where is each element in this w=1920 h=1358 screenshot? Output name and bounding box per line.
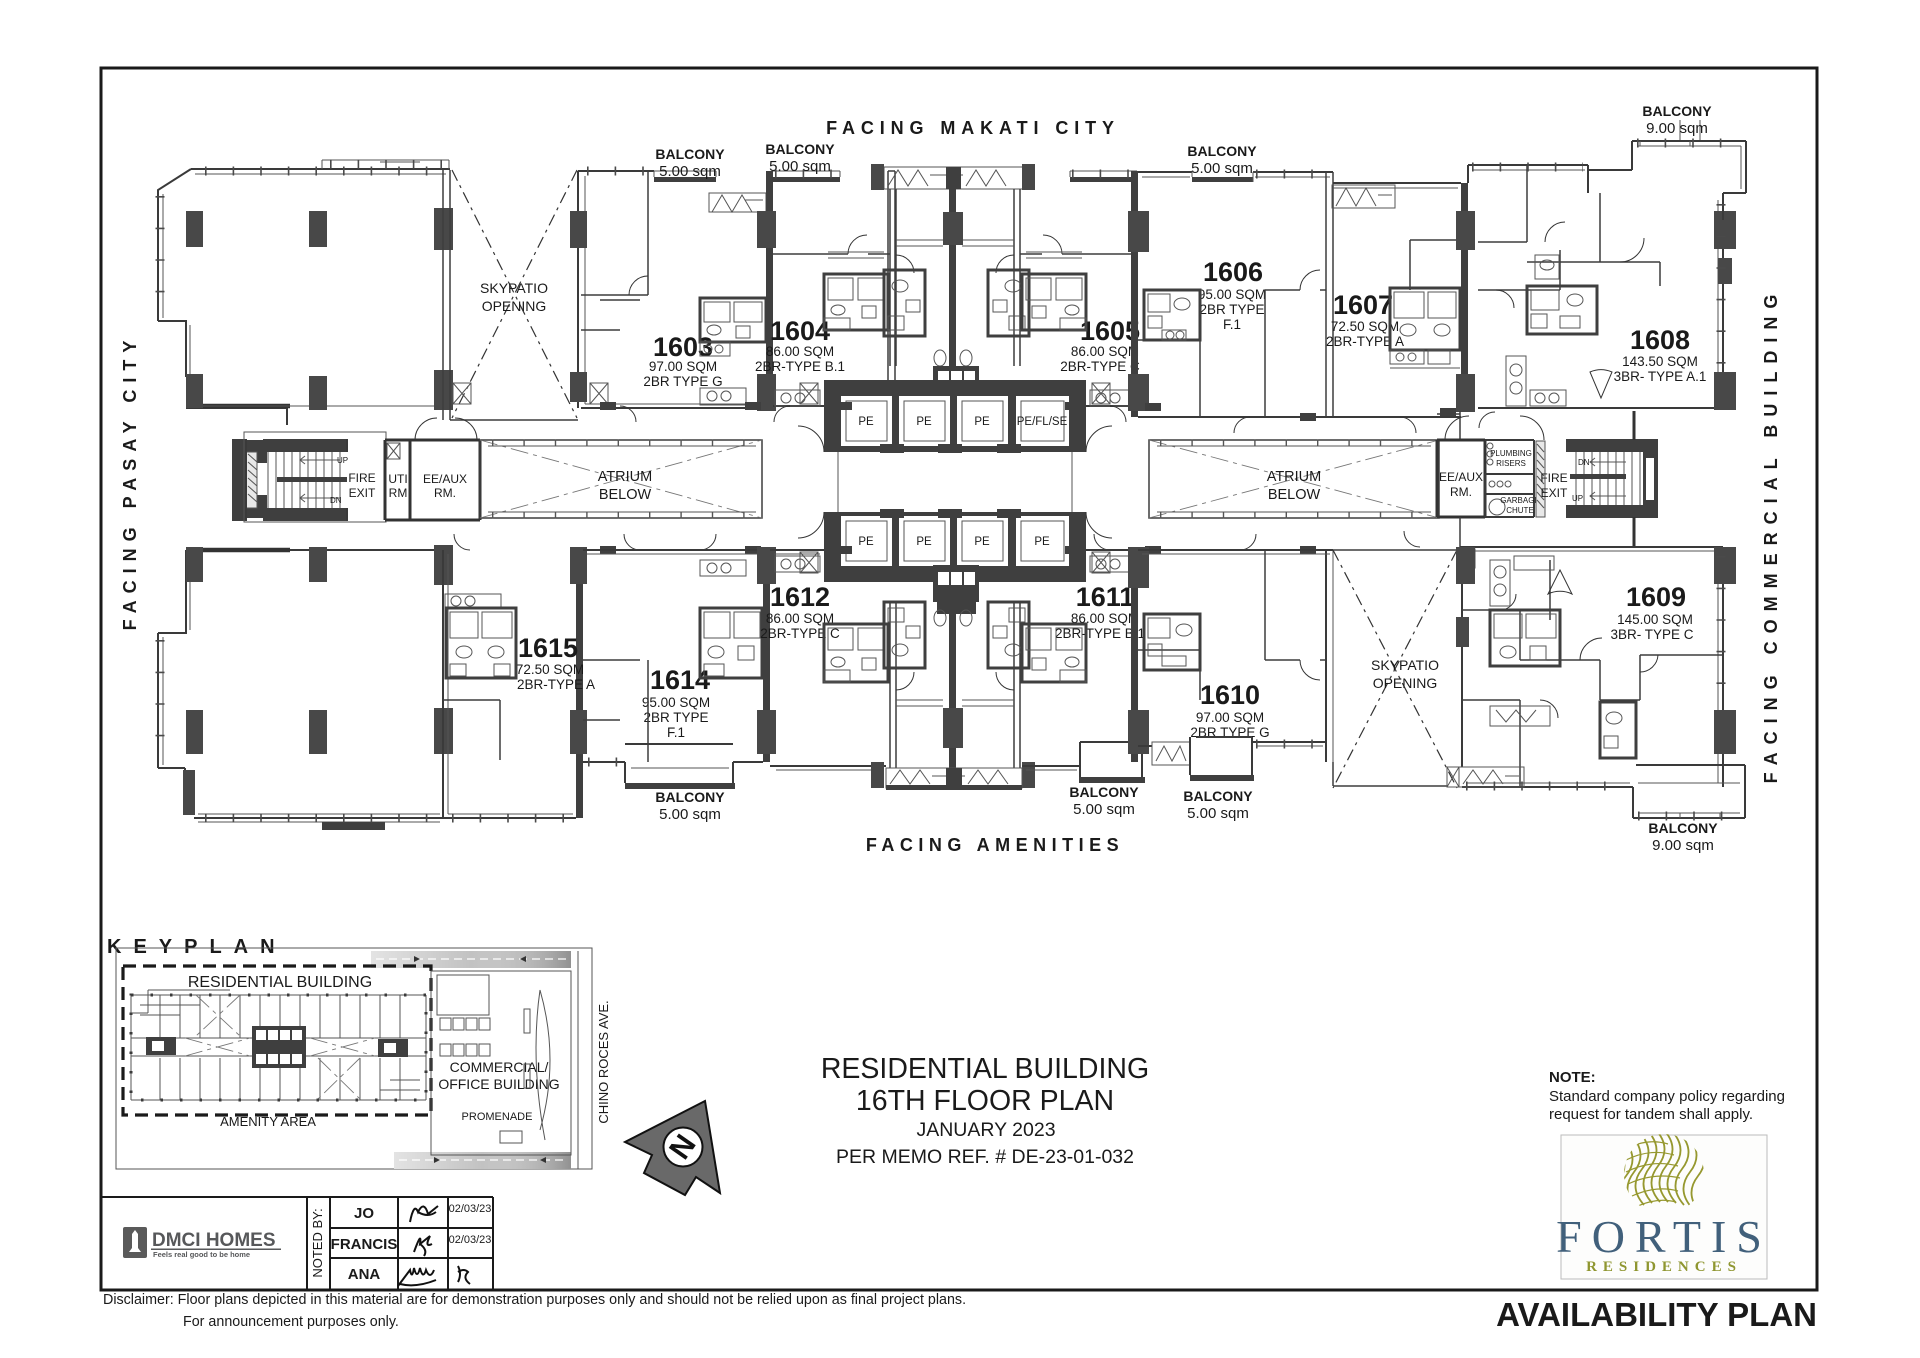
svg-text:For announcement purposes only: For announcement purposes only. — [183, 1314, 399, 1330]
svg-text:FACING PASAY CITY: FACING PASAY CITY — [120, 334, 140, 631]
svg-text:FIRE: FIRE — [348, 471, 375, 485]
svg-text:RM: RM — [389, 486, 408, 500]
svg-text:SKYPATIO: SKYPATIO — [1371, 657, 1439, 673]
svg-text:PE: PE — [858, 416, 874, 428]
svg-text:9.00 sqm: 9.00 sqm — [1652, 837, 1714, 854]
svg-text:BALCONY: BALCONY — [655, 789, 725, 805]
svg-text:3BR- TYPE A.1: 3BR- TYPE A.1 — [1614, 369, 1707, 384]
svg-text:DMCI HOMES: DMCI HOMES — [152, 1230, 276, 1251]
svg-text:1615: 1615 — [518, 633, 578, 663]
svg-text:RM.: RM. — [434, 486, 456, 500]
svg-text:SKYPATIO: SKYPATIO — [480, 280, 548, 296]
svg-text:FORTIS: FORTIS — [1556, 1211, 1772, 1262]
svg-text:1610: 1610 — [1200, 680, 1260, 710]
svg-text:PE: PE — [974, 536, 990, 548]
svg-text:RESIDENTIAL BUILDING: RESIDENTIAL BUILDING — [821, 1053, 1149, 1085]
svg-text:2BR-TYPE C: 2BR-TYPE C — [1060, 359, 1140, 374]
svg-text:BELOW: BELOW — [1268, 487, 1321, 503]
svg-text:5.00 sqm: 5.00 sqm — [769, 158, 831, 175]
svg-text:Feels real good to be home: Feels real good to be home — [153, 1250, 250, 1259]
svg-text:BALCONY: BALCONY — [1642, 103, 1712, 119]
svg-text:2BR TYPE G: 2BR TYPE G — [643, 374, 722, 389]
svg-text:EXIT: EXIT — [349, 486, 376, 500]
svg-text:1612: 1612 — [770, 582, 830, 612]
svg-text:EE/AUX: EE/AUX — [1439, 470, 1483, 484]
svg-text:RESIDENCES: RESIDENCES — [1586, 1259, 1742, 1275]
svg-text:86.00 SQM: 86.00 SQM — [766, 344, 834, 359]
svg-text:BELOW: BELOW — [599, 487, 652, 503]
svg-text:AMENITY AREA: AMENITY AREA — [220, 1114, 316, 1129]
svg-text:02/03/23: 02/03/23 — [449, 1203, 492, 1215]
svg-text:EXIT: EXIT — [1541, 486, 1568, 500]
svg-text:5.00 sqm: 5.00 sqm — [1187, 805, 1249, 822]
svg-text:OPENING: OPENING — [482, 298, 547, 314]
svg-text:OFFICE BUILDING: OFFICE BUILDING — [438, 1076, 559, 1092]
svg-text:PE: PE — [1034, 536, 1050, 548]
svg-text:RM.: RM. — [1450, 485, 1472, 499]
svg-text:ATRIUM: ATRIUM — [598, 469, 653, 485]
svg-text:GARBAGE: GARBAGE — [1500, 496, 1540, 505]
svg-text:BALCONY: BALCONY — [1069, 784, 1139, 800]
svg-text:ANA: ANA — [348, 1266, 381, 1283]
svg-text:ATRIUM: ATRIUM — [1267, 469, 1322, 485]
svg-text:JANUARY 2023: JANUARY 2023 — [916, 1119, 1055, 1141]
svg-text:2BR-TYPE A: 2BR-TYPE A — [1326, 334, 1404, 349]
svg-text:BALCONY: BALCONY — [765, 141, 835, 157]
svg-text:BALCONY: BALCONY — [655, 146, 725, 162]
svg-text:FRANCIS: FRANCIS — [331, 1236, 398, 1253]
svg-text:BALCONY: BALCONY — [1187, 143, 1257, 159]
svg-text:Disclaimer: Floor plans dep: Disclaimer: Floor plans depicted in this… — [103, 1292, 966, 1308]
svg-text:COMMERCIAL/: COMMERCIAL/ — [450, 1059, 549, 1075]
svg-text:86.00 SQM: 86.00 SQM — [1071, 344, 1139, 359]
svg-text:AVAILABILITY PLAN: AVAILABILITY PLAN — [1496, 1296, 1817, 1333]
svg-text:5.00 sqm: 5.00 sqm — [659, 163, 721, 180]
svg-text:1609: 1609 — [1626, 582, 1686, 612]
svg-text:FIRE: FIRE — [1540, 471, 1567, 485]
svg-text:1607: 1607 — [1333, 290, 1393, 320]
svg-text:NOTE:: NOTE: — [1549, 1069, 1596, 1086]
svg-text:1604: 1604 — [770, 316, 830, 346]
svg-text:OPENING: OPENING — [1373, 675, 1438, 691]
svg-text:RESIDENTIAL BUILDING: RESIDENTIAL BUILDING — [188, 974, 372, 991]
svg-text:BALCONY: BALCONY — [1648, 820, 1718, 836]
svg-text:97.00 SQM: 97.00 SQM — [649, 359, 717, 374]
svg-text:PER MEMO REF. # DE-23-01-032: PER MEMO REF. # DE-23-01-032 — [836, 1146, 1134, 1168]
svg-text:NOTED BY:: NOTED BY: — [310, 1208, 325, 1277]
svg-text:2BR TYPE: 2BR TYPE — [1199, 302, 1264, 317]
svg-text:95.00 SQM: 95.00 SQM — [642, 695, 710, 710]
svg-text:PE: PE — [916, 536, 932, 548]
svg-text:PE: PE — [858, 536, 874, 548]
svg-text:FACING MAKATI CITY: FACING MAKATI CITY — [826, 118, 1120, 138]
svg-text:BALCONY: BALCONY — [1183, 788, 1253, 804]
svg-text:F.1: F.1 — [667, 725, 685, 740]
svg-text:72.50 SQM: 72.50 SQM — [516, 662, 584, 677]
svg-text:5.00 sqm: 5.00 sqm — [1073, 801, 1135, 818]
svg-text:DN: DN — [1578, 458, 1590, 467]
svg-text:UP: UP — [1572, 494, 1583, 503]
svg-text:JO: JO — [354, 1205, 374, 1222]
svg-text:FACING AMENITIES: FACING AMENITIES — [866, 835, 1124, 855]
svg-text:F.1: F.1 — [1223, 317, 1241, 332]
svg-text:UTI: UTI — [388, 472, 407, 486]
svg-text:95.00 SQM: 95.00 SQM — [1198, 287, 1266, 302]
svg-text:3BR- TYPE C: 3BR- TYPE C — [1610, 627, 1693, 642]
svg-text:5.00 sqm: 5.00 sqm — [1191, 160, 1253, 177]
svg-text:1611: 1611 — [1076, 582, 1135, 612]
svg-text:KEYPLAN: KEYPLAN — [107, 936, 287, 958]
svg-text:145.00 SQM: 145.00 SQM — [1617, 612, 1693, 627]
svg-text:EE/AUX: EE/AUX — [423, 472, 467, 486]
svg-text:PE: PE — [974, 416, 990, 428]
svg-text:2BR-TYPE B.1: 2BR-TYPE B.1 — [755, 359, 845, 374]
svg-text:2BR TYPE: 2BR TYPE — [643, 710, 708, 725]
svg-text:PE: PE — [916, 416, 932, 428]
svg-text:UP: UP — [337, 456, 348, 465]
svg-text:97.00 SQM: 97.00 SQM — [1196, 710, 1264, 725]
svg-text:FACING COMMERCIAL BUILDING: FACING COMMERCIAL BUILDING — [1761, 287, 1781, 784]
svg-text:02/03/23: 02/03/23 — [449, 1234, 492, 1246]
svg-text:2BR-TYPE A: 2BR-TYPE A — [517, 677, 595, 692]
svg-text:1606: 1606 — [1203, 257, 1263, 287]
svg-text:CHUTE: CHUTE — [1506, 506, 1534, 515]
svg-text:DN: DN — [330, 496, 342, 505]
svg-text:1608: 1608 — [1630, 325, 1690, 355]
svg-text:9.00 sqm: 9.00 sqm — [1646, 120, 1708, 137]
svg-text:PLUMBING: PLUMBING — [1490, 449, 1532, 458]
svg-text:PROMENADE: PROMENADE — [462, 1111, 533, 1123]
svg-text:5.00 sqm: 5.00 sqm — [659, 806, 721, 823]
svg-text:RISERS: RISERS — [1496, 459, 1526, 468]
svg-text:PE/FL/SE: PE/FL/SE — [1017, 416, 1068, 428]
svg-text:Standard company policy regard: Standard company policy regarding — [1549, 1088, 1785, 1105]
svg-text:143.50 SQM: 143.50 SQM — [1622, 354, 1698, 369]
svg-text:CHINO ROCES AVE.: CHINO ROCES AVE. — [596, 1000, 611, 1123]
svg-text:16TH FLOOR PLAN: 16TH FLOOR PLAN — [856, 1085, 1114, 1117]
svg-text:request for tandem shall apply: request for tandem shall apply. — [1549, 1106, 1753, 1123]
